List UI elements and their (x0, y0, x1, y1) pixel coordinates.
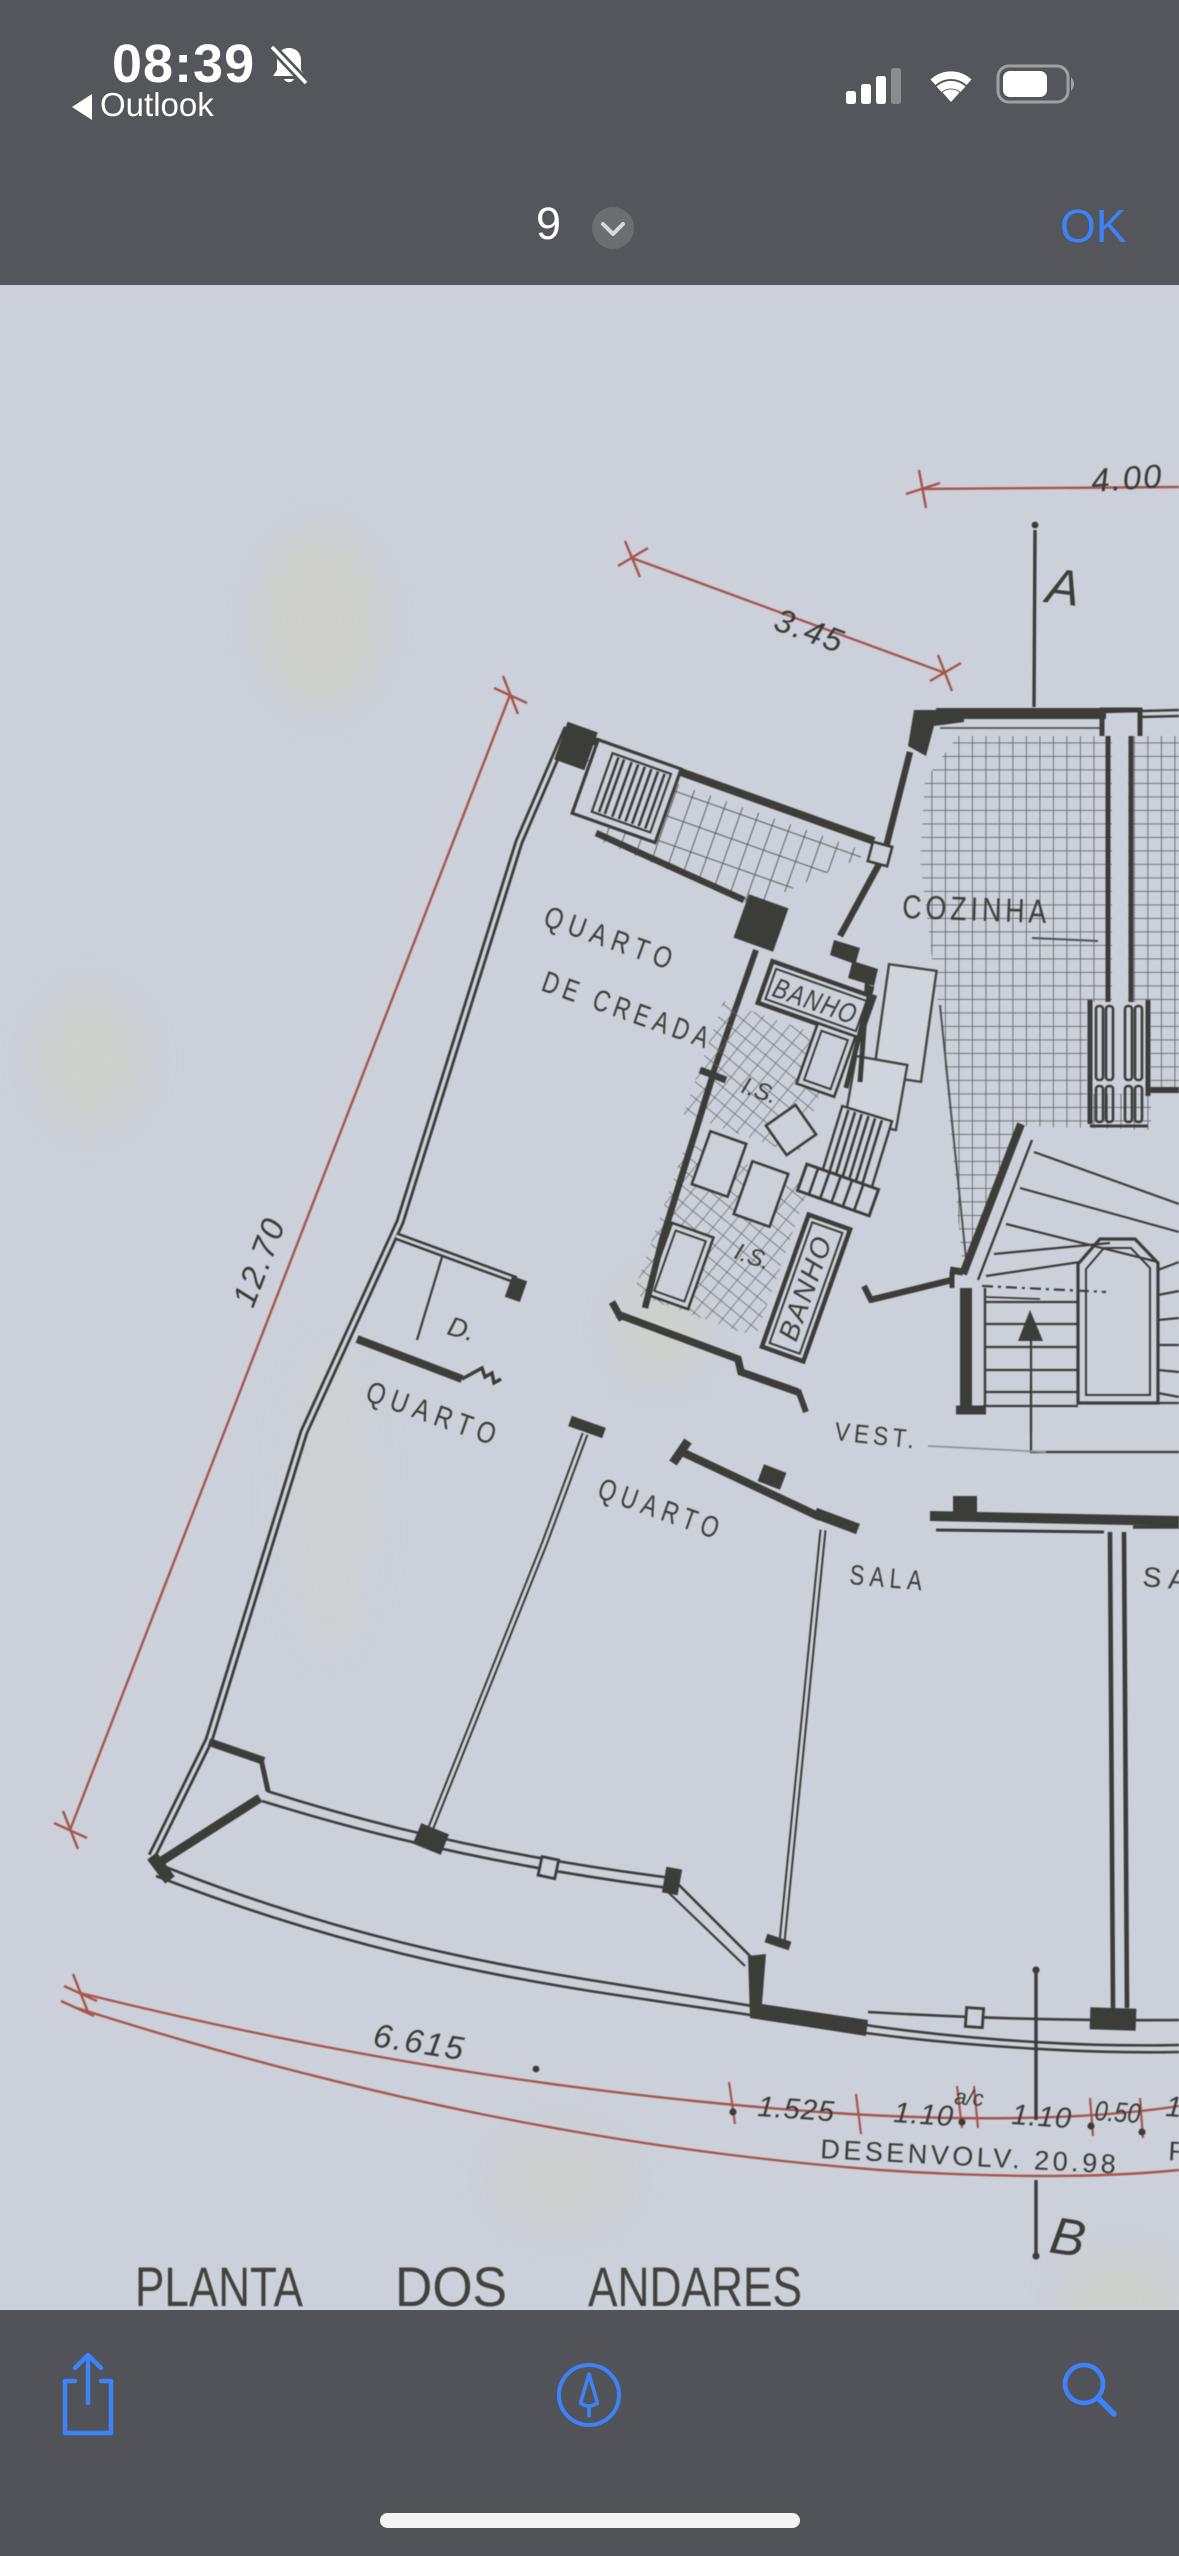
svg-text:a/c: a/c (954, 2084, 985, 2111)
svg-text:1.525: 1.525 (757, 2091, 837, 2128)
svg-text:ANDARES: ANDARES (588, 2255, 802, 2310)
svg-text:1.: 1. (1165, 2091, 1179, 2125)
svg-text:4.00: 4.00 (1090, 457, 1165, 499)
svg-text:PLANTA: PLANTA (135, 2255, 304, 2310)
svg-text:1.10: 1.10 (893, 2097, 956, 2133)
svg-text:R: R (1168, 2136, 1179, 2167)
svg-text:1.10: 1.10 (1011, 2099, 1074, 2135)
svg-text:DOS: DOS (395, 2255, 507, 2310)
svg-text:COZINHA: COZINHA (902, 888, 1051, 930)
svg-text:0.50: 0.50 (1094, 2095, 1142, 2129)
